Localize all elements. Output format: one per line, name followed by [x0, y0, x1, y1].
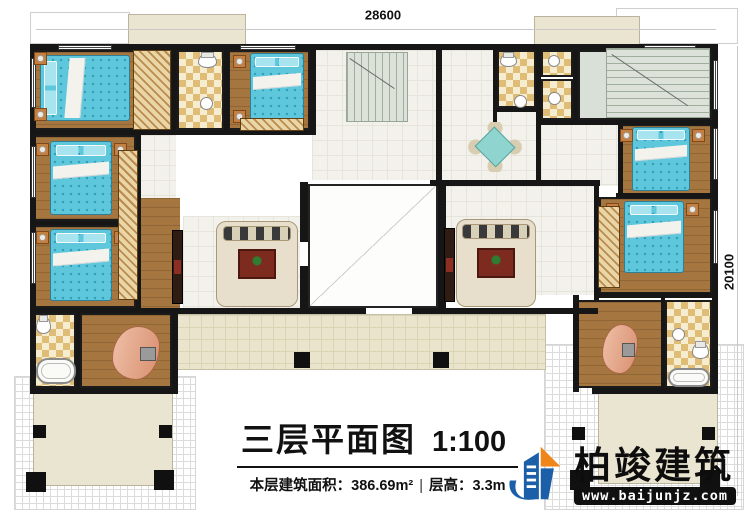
- sofa-24: [216, 221, 298, 307]
- wardrobe-18: [133, 50, 171, 130]
- column-4: [26, 472, 46, 492]
- column-7: [702, 427, 715, 440]
- room-terrace-bottom-left: [33, 392, 173, 486]
- wall-28: [573, 295, 579, 392]
- wall-17: [536, 44, 541, 184]
- wall-21: [430, 180, 600, 186]
- night-17: [686, 203, 699, 216]
- basin-37: [548, 55, 560, 67]
- wall-10: [310, 46, 316, 134]
- toilet-34: [36, 316, 51, 334]
- dining-26: [468, 122, 522, 172]
- area-note-label: 本层建筑面积：: [250, 478, 352, 494]
- toilet-32: [500, 53, 517, 67]
- wall-31: [616, 193, 716, 198]
- room-hall-470: [139, 135, 176, 198]
- wall-5: [176, 308, 366, 314]
- wall-15: [172, 308, 178, 394]
- tub-30: [668, 368, 710, 387]
- floor-plan-canvas: 28600 20100 三层平面图1:100 本层建筑面积：386.69m²|层…: [0, 0, 750, 521]
- cabinet-22: [172, 230, 183, 304]
- title-block: 三层平面图1:100 本层建筑面积：386.69m²|层高：3.3m: [237, 413, 518, 495]
- wall-8: [172, 46, 177, 134]
- basin-36: [514, 95, 527, 108]
- bed-2: [50, 229, 112, 301]
- bed-1: [50, 141, 112, 215]
- wall-9: [224, 46, 229, 134]
- column-1: [433, 352, 449, 368]
- wall-24: [495, 108, 540, 112]
- night-15: [692, 129, 705, 142]
- stairs-40: [346, 52, 408, 122]
- window-8: [713, 210, 718, 264]
- sofa-25: [456, 219, 536, 307]
- window-1: [240, 45, 296, 50]
- column-2: [33, 425, 46, 438]
- room-hall-1018: [541, 124, 618, 186]
- column-5: [154, 470, 174, 490]
- logo-text-group: 柏竣建筑 www.baijunjz.com: [574, 447, 750, 505]
- right-dimension-label: 20100: [722, 250, 737, 294]
- basin-38: [548, 92, 561, 105]
- window-0: [58, 45, 112, 50]
- wall-4: [592, 388, 718, 394]
- right-dimension-line: [737, 46, 738, 496]
- wall-18: [300, 182, 308, 242]
- top-dimension-line: [36, 29, 716, 30]
- stairs-41: [606, 48, 710, 118]
- night-8: [36, 143, 49, 156]
- wardrobe-20: [598, 206, 620, 288]
- wall-16: [436, 44, 442, 184]
- basin-35: [200, 97, 213, 110]
- night-14: [620, 129, 633, 142]
- wall-19: [300, 266, 308, 312]
- tub-29: [36, 358, 76, 384]
- column-0: [294, 352, 310, 368]
- wall-25: [536, 120, 716, 125]
- column-3: [159, 425, 172, 438]
- room-terrace-top-right: [534, 16, 640, 46]
- window-7: [713, 128, 718, 180]
- night-6: [34, 52, 47, 65]
- logo-icon: [507, 444, 567, 507]
- logo-url: www.baijunjz.com: [574, 487, 736, 505]
- top-dimension-label: 28600: [361, 8, 405, 23]
- room-outer-corridor: [176, 314, 546, 370]
- wall-23: [573, 44, 578, 124]
- wall-29: [594, 293, 716, 298]
- night-12: [233, 55, 246, 68]
- plan-title-row: 三层平面图1:100: [237, 413, 518, 468]
- window-6: [713, 60, 718, 110]
- column-6: [572, 427, 585, 440]
- cabinet-23: [444, 228, 455, 302]
- subtitle-divider: |: [419, 478, 423, 494]
- wardrobe-21: [240, 118, 304, 131]
- wall-14: [76, 311, 80, 391]
- bed-0: [40, 55, 130, 121]
- plan-title: 三层平面图: [241, 421, 416, 458]
- company-logo: 柏竣建筑 www.baijunjz.com: [507, 444, 750, 507]
- wall-13: [30, 308, 178, 313]
- window-3: [31, 58, 36, 108]
- floor-height-value: 3.3m: [472, 478, 505, 494]
- wardrobe-19: [118, 150, 138, 300]
- room-roof-top-left: [30, 12, 130, 44]
- room-terrace-top-left: [128, 14, 246, 46]
- bed-3: [250, 53, 304, 125]
- logo-name: 柏竣建筑: [574, 445, 734, 486]
- toilet-31: [198, 53, 217, 68]
- wall-3: [30, 388, 178, 394]
- basin-39: [672, 328, 685, 341]
- room-living-void: [308, 184, 438, 308]
- bed-5: [624, 201, 684, 273]
- area-note-value: 386.69m²: [351, 478, 413, 494]
- toilet-33: [692, 342, 709, 359]
- plan-subtitle: 本层建筑面积：386.69m²|层高：3.3m: [237, 474, 518, 495]
- floor-height-label: 层高：: [429, 478, 473, 494]
- night-10: [36, 231, 49, 244]
- wall-30: [661, 298, 665, 390]
- bed-4: [632, 127, 690, 191]
- night-7: [34, 108, 47, 121]
- plan-scale: 1:100: [432, 426, 506, 458]
